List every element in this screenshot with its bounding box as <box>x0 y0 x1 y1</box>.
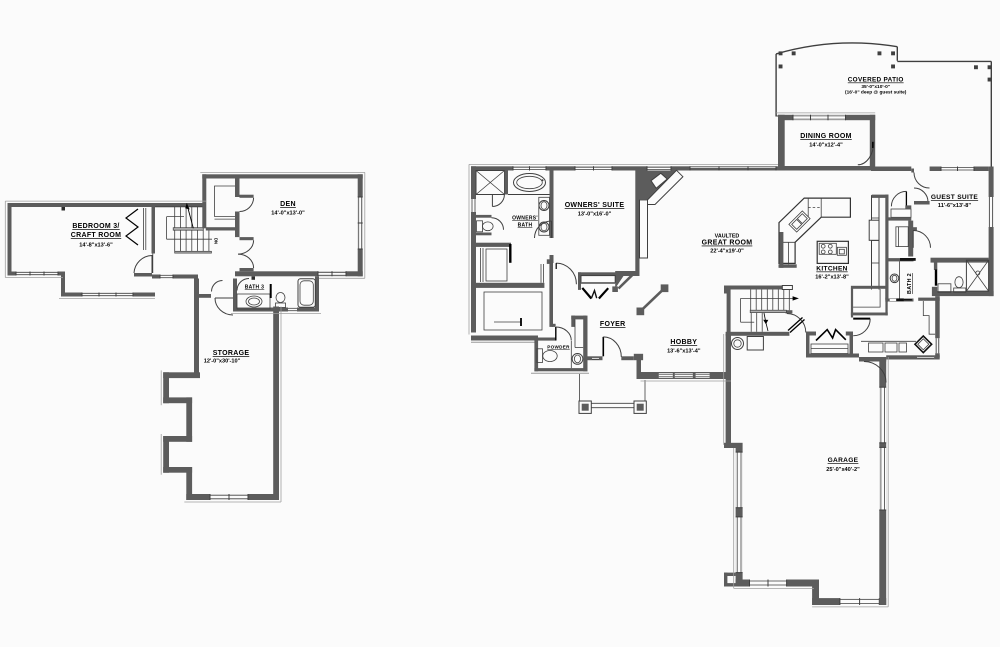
svg-text:CRAFT ROOM: CRAFT ROOM <box>71 232 121 239</box>
svg-text:12'-0"x30'-10": 12'-0"x30'-10" <box>204 359 241 365</box>
svg-text:35'-0"x10'-0": 35'-0"x10'-0" <box>861 84 890 90</box>
svg-text:DINING ROOM: DINING ROOM <box>800 133 852 140</box>
svg-text:GUEST SUITE: GUEST SUITE <box>931 194 979 201</box>
svg-text:BEDROOM 3/: BEDROOM 3/ <box>72 223 119 230</box>
svg-text:16'-2"x13'-8": 16'-2"x13'-8" <box>815 275 849 281</box>
svg-text:FOYER: FOYER <box>600 321 626 328</box>
svg-text:BATH: BATH <box>518 223 533 229</box>
svg-text:GREAT ROOM: GREAT ROOM <box>702 240 753 247</box>
svg-text:14'-0"x13'-0": 14'-0"x13'-0" <box>271 211 305 217</box>
svg-text:VAULTED: VAULTED <box>715 233 740 239</box>
svg-text:(16'-0" deep @ guest suite): (16'-0" deep @ guest suite) <box>845 89 907 95</box>
svg-text:14'-0"x12'-4": 14'-0"x12'-4" <box>809 143 843 149</box>
svg-text:22'-4"x19'-0": 22'-4"x19'-0" <box>710 248 744 254</box>
svg-text:OWNERS' SUITE: OWNERS' SUITE <box>565 202 625 209</box>
svg-text:GARAGE: GARAGE <box>828 457 859 464</box>
svg-text:DEN: DEN <box>280 201 296 208</box>
svg-text:COVERED PATIO: COVERED PATIO <box>848 77 904 84</box>
svg-text:HOBBY: HOBBY <box>670 339 697 346</box>
svg-text:OWNERS': OWNERS' <box>512 216 538 222</box>
svg-text:11'-6"x13'-8": 11'-6"x13'-8" <box>938 203 972 209</box>
svg-text:13'-6"x13'-4": 13'-6"x13'-4" <box>667 349 701 355</box>
svg-text:KITCHEN: KITCHEN <box>816 266 847 273</box>
svg-text:14'-8"x13'-6": 14'-8"x13'-6" <box>79 243 113 249</box>
svg-text:STORAGE: STORAGE <box>213 350 250 357</box>
svg-text:BATH 2: BATH 2 <box>907 273 913 294</box>
svg-text:13'-0"x16'-0": 13'-0"x16'-0" <box>578 212 612 218</box>
svg-text:25'-0"x40'-2": 25'-0"x40'-2" <box>826 467 860 473</box>
svg-text:BATH 3: BATH 3 <box>245 285 265 291</box>
svg-text:DN: DN <box>214 238 219 244</box>
svg-text:POWDER: POWDER <box>547 344 570 349</box>
